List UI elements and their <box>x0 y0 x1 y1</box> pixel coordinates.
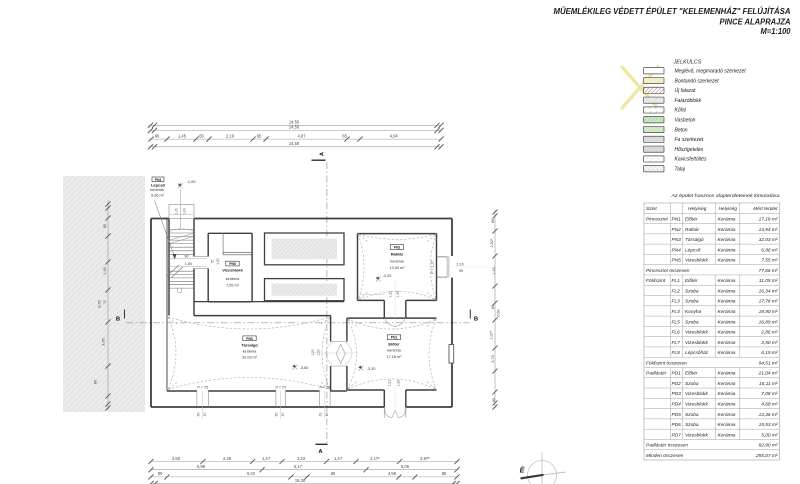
svg-text:Szoba: Szoba <box>685 288 699 294</box>
svg-text:15,30: 15,30 <box>295 478 306 483</box>
svg-text:FL5: FL5 <box>672 319 681 325</box>
svg-text:PN5: PN5 <box>672 258 682 264</box>
svg-text:6,60: 6,60 <box>496 310 500 317</box>
svg-text:4,68 m²: 4,68 m² <box>761 402 778 408</box>
svg-text:PN1: PN1 <box>391 336 398 340</box>
svg-text:1,80: 1,80 <box>185 262 192 266</box>
svg-text:17,18 m²: 17,18 m² <box>759 216 778 222</box>
svg-text:MŰEMLÉKILEG VÉDETT ÉPÜLET "KEL: MŰEMLÉKILEG VÉDETT ÉPÜLET "KELEMENHÁZ" F… <box>554 5 791 16</box>
svg-text:1,10: 1,10 <box>456 262 463 266</box>
svg-text:Falazóblokk: Falazóblokk <box>675 98 702 104</box>
svg-text:Kerámia: Kerámia <box>718 371 736 377</box>
svg-text:PD5: PD5 <box>672 412 682 418</box>
svg-text:Kerámia: Kerámia <box>718 247 736 253</box>
svg-text:2,48: 2,48 <box>223 456 232 461</box>
svg-text:3,85: 3,85 <box>101 338 105 345</box>
svg-text:Beton: Beton <box>675 127 688 133</box>
svg-text:Kerámia: Kerámia <box>718 216 736 222</box>
svg-text:7,55 m²: 7,55 m² <box>761 258 778 264</box>
svg-text:PINCE ALAPRAJZA: PINCE ALAPRAJZA <box>720 16 791 26</box>
svg-text:40: 40 <box>325 413 329 417</box>
svg-text:1,20: 1,20 <box>311 349 315 356</box>
svg-text:1,45: 1,45 <box>175 208 179 215</box>
svg-text:2,86 m²: 2,86 m² <box>760 330 778 336</box>
svg-text:60: 60 <box>275 413 279 417</box>
svg-text:FL8: FL8 <box>672 350 681 356</box>
svg-text:19,90 m²: 19,90 m² <box>759 309 778 315</box>
svg-text:Meglévő, megmaradó szerkezet: Meglévő, megmaradó szerkezet <box>675 68 747 74</box>
svg-text:80: 80 <box>442 471 447 476</box>
svg-text:2,60: 2,60 <box>172 456 181 461</box>
svg-text:6,96 m²: 6,96 m² <box>151 194 165 198</box>
svg-text:2,52⁵: 2,52⁵ <box>490 238 494 247</box>
svg-text:kerámia: kerámia <box>150 188 164 192</box>
svg-text:Új falazat: Új falazat <box>675 87 696 94</box>
svg-text:2,19: 2,19 <box>226 133 235 138</box>
svg-text:1,20: 1,20 <box>388 291 392 298</box>
svg-text:3,50 m²: 3,50 m² <box>761 340 778 346</box>
svg-text:P = 75: P = 75 <box>197 386 209 390</box>
svg-text:Raktár: Raktár <box>685 227 700 233</box>
svg-text:PN3: PN3 <box>246 337 253 341</box>
svg-text:-3,20: -3,20 <box>383 273 393 278</box>
svg-text:4,04: 4,04 <box>390 133 399 138</box>
svg-text:94,51 m²: 94,51 m² <box>759 360 778 366</box>
svg-text:Vizesblokk: Vizesblokk <box>685 330 708 336</box>
svg-text:Vizesblokk: Vizesblokk <box>685 258 708 264</box>
svg-text:Kerámia: Kerámia <box>718 258 736 264</box>
svg-text:Kerámia: Kerámia <box>718 350 736 356</box>
svg-text:FL7: FL7 <box>672 340 681 346</box>
svg-text:17,78 m²: 17,78 m² <box>759 299 778 305</box>
svg-text:17,18 m²: 17,18 m² <box>387 355 403 359</box>
svg-text:7,08 m²: 7,08 m² <box>761 391 778 397</box>
svg-text:PN2: PN2 <box>672 227 682 233</box>
svg-text:Lépcső: Lépcső <box>151 183 166 188</box>
svg-text:Szoba: Szoba <box>685 381 699 387</box>
svg-text:13,94 m²: 13,94 m² <box>759 227 778 233</box>
svg-text:PN4: PN4 <box>672 247 682 253</box>
svg-text:Kerámia: Kerámia <box>718 381 736 387</box>
svg-text:Előtér: Előtér <box>685 278 698 284</box>
svg-text:Kerámia: Kerámia <box>718 402 736 408</box>
svg-text:80: 80 <box>331 471 336 476</box>
svg-text:75: 75 <box>210 260 214 264</box>
svg-text:Talaj: Talaj <box>675 166 686 172</box>
svg-text:80: 80 <box>103 224 107 228</box>
svg-text:Kerámia: Kerámia <box>718 391 736 397</box>
svg-text:5,00 m²: 5,00 m² <box>761 432 778 438</box>
svg-text:FL1: FL1 <box>672 278 681 284</box>
svg-text:1,92: 1,92 <box>396 291 400 298</box>
svg-text:PN4: PN4 <box>155 178 162 182</box>
svg-text:15,53 m²: 15,53 m² <box>759 422 778 428</box>
svg-text:PD6: PD6 <box>672 422 682 428</box>
svg-text:PN5: PN5 <box>229 262 236 266</box>
svg-text:Szoba: Szoba <box>685 319 699 325</box>
svg-text:1,45: 1,45 <box>492 267 496 274</box>
svg-text:Kerámia: Kerámia <box>718 319 736 325</box>
svg-text:Kerámia: Kerámia <box>718 340 736 346</box>
svg-text:Szint: Szint <box>646 206 657 212</box>
svg-text:Vizesblokk: Vizesblokk <box>685 402 708 408</box>
svg-text:PD7: PD7 <box>672 432 682 438</box>
svg-text:1,80: 1,80 <box>183 208 187 215</box>
svg-text:PN3: PN3 <box>672 237 682 243</box>
svg-text:40: 40 <box>281 413 285 417</box>
svg-text:82,90 m²: 82,90 m² <box>759 443 778 449</box>
svg-text:kerámia: kerámia <box>226 277 240 281</box>
svg-text:1,45: 1,45 <box>103 267 107 274</box>
svg-text:Fa szerkezet: Fa szerkezet <box>675 137 704 143</box>
svg-text:60: 60 <box>196 413 200 417</box>
svg-text:Szoba: Szoba <box>685 412 699 418</box>
svg-text:5,98: 5,98 <box>197 464 206 469</box>
svg-text:21,04 m²: 21,04 m² <box>758 371 778 377</box>
svg-text:Pinceszint összesen: Pinceszint összesen <box>646 268 690 274</box>
svg-text:Raktár: Raktár <box>391 252 404 257</box>
svg-text:M=1:100: M=1:100 <box>761 26 791 36</box>
svg-text:Kerámia: Kerámia <box>718 330 736 336</box>
svg-text:5,17: 5,17 <box>294 464 303 469</box>
svg-text:5,05: 5,05 <box>401 464 410 469</box>
svg-text:4,07: 4,07 <box>298 133 307 138</box>
svg-text:1,47: 1,47 <box>262 456 271 461</box>
svg-text:1,07⁵: 1,07⁵ <box>489 330 493 339</box>
svg-text:1,92: 1,92 <box>396 380 400 387</box>
svg-text:PD2: PD2 <box>672 381 682 387</box>
svg-text:PD3: PD3 <box>672 391 682 397</box>
svg-text:kerámia: kerámia <box>390 259 404 263</box>
svg-text:Lépcső: Lépcső <box>685 247 701 253</box>
svg-text:kerámia: kerámia <box>243 349 257 353</box>
svg-text:Padlástér összesen: Padlástér összesen <box>646 443 688 449</box>
svg-text:Szoba: Szoba <box>685 422 699 428</box>
svg-text:Kerámia: Kerámia <box>718 309 736 315</box>
svg-text:13,46 m²: 13,46 m² <box>759 412 778 418</box>
svg-text:Vizesblokk: Vizesblokk <box>685 432 708 438</box>
svg-text:-3,60: -3,60 <box>300 365 310 370</box>
svg-text:Kerámia: Kerámia <box>718 422 736 428</box>
svg-text:P = 75: P = 75 <box>275 386 287 390</box>
svg-text:Lépcsőház: Lépcsőház <box>685 350 709 356</box>
svg-text:2,17⁵: 2,17⁵ <box>370 456 380 461</box>
svg-text:70: 70 <box>103 300 107 304</box>
svg-text:1,21: 1,21 <box>388 380 392 387</box>
svg-text:Vasbeton: Vasbeton <box>675 117 696 123</box>
svg-text:Szoba: Szoba <box>685 299 699 305</box>
svg-text:Hőszigetelés: Hőszigetelés <box>675 147 704 153</box>
svg-text:É: É <box>520 466 525 475</box>
svg-text:1,90: 1,90 <box>216 258 220 265</box>
svg-text:255,07 m²: 255,07 m² <box>755 453 778 459</box>
svg-text:11,05 m²: 11,05 m² <box>759 278 778 284</box>
svg-text:6,60: 6,60 <box>98 300 102 307</box>
svg-text:FL3: FL3 <box>672 299 681 305</box>
svg-text:Konyha: Konyha <box>685 309 702 315</box>
svg-text:Bontandó szerkezet: Bontandó szerkezet <box>675 78 720 84</box>
svg-text:65: 65 <box>199 133 204 138</box>
svg-text:16,11 m²: 16,11 m² <box>759 381 778 387</box>
svg-text:B: B <box>116 317 120 323</box>
svg-text:Kerámia: Kerámia <box>718 432 736 438</box>
svg-text:FL6: FL6 <box>672 330 681 336</box>
svg-text:2,97⁵: 2,97⁵ <box>420 456 430 461</box>
svg-text:-1,00: -1,00 <box>187 179 197 184</box>
svg-text:Kavicsfeltöltés: Kavicsfeltöltés <box>675 157 707 163</box>
svg-text:P = 75: P = 75 <box>319 386 331 390</box>
svg-text:JELKULCS: JELKULCS <box>672 60 702 66</box>
svg-text:Földszint összesen: Földszint összesen <box>646 360 687 366</box>
svg-text:Előtér: Előtér <box>685 371 698 377</box>
svg-text:FL2: FL2 <box>672 288 681 294</box>
svg-text:32,03 m²: 32,03 m² <box>242 356 258 360</box>
svg-text:65: 65 <box>342 133 347 138</box>
svg-text:Vizesblokk: Vizesblokk <box>685 391 708 397</box>
svg-text:4,58: 4,58 <box>388 471 397 476</box>
svg-text:16,34 m²: 16,34 m² <box>759 288 778 294</box>
svg-text:Helyiség: Helyiség <box>719 206 738 212</box>
svg-text:Előtér: Előtér <box>388 341 400 346</box>
svg-text:90: 90 <box>184 255 188 259</box>
svg-text:14,50: 14,50 <box>289 125 300 130</box>
svg-text:Kerámia: Kerámia <box>718 237 736 243</box>
svg-text:kerámia: kerámia <box>387 348 401 352</box>
svg-text:-3,20: -3,20 <box>367 366 377 371</box>
svg-text:FL4: FL4 <box>672 309 681 315</box>
svg-text:Mért terület: Mért terület <box>753 206 778 212</box>
svg-text:16,89 m²: 16,89 m² <box>759 319 778 325</box>
svg-text:Kerámia: Kerámia <box>718 278 736 284</box>
svg-text:Kerámia: Kerámia <box>718 288 736 294</box>
svg-text:Kőfal: Kőfal <box>675 108 687 114</box>
svg-text:65: 65 <box>257 133 262 138</box>
svg-text:PN2: PN2 <box>394 246 401 250</box>
svg-text:80: 80 <box>492 398 496 402</box>
svg-text:6,19 m²: 6,19 m² <box>761 350 778 356</box>
svg-text:90: 90 <box>459 269 463 273</box>
svg-text:PN1: PN1 <box>672 216 682 222</box>
svg-text:Kerámia: Kerámia <box>718 227 736 233</box>
svg-text:Padlástér: Padlástér <box>646 371 667 377</box>
svg-text:B: B <box>474 317 478 323</box>
svg-text:6,96 m²: 6,96 m² <box>761 247 778 253</box>
svg-text:3,75: 3,75 <box>491 355 495 362</box>
svg-text:Az épület hasznos alapterülete: Az épület hasznos alapterületeinek kimut… <box>670 193 780 198</box>
svg-text:80: 80 <box>491 219 495 223</box>
svg-text:1,90: 1,90 <box>317 349 321 356</box>
svg-text:PD4: PD4 <box>672 402 682 408</box>
svg-text:80: 80 <box>155 133 160 138</box>
svg-text:Kerámia: Kerámia <box>718 412 736 418</box>
svg-text:32,03 m²: 32,03 m² <box>759 237 778 243</box>
svg-text:77,66 m²: 77,66 m² <box>759 268 778 274</box>
svg-text:Előtér: Előtér <box>685 216 698 222</box>
svg-text:1,45: 1,45 <box>178 133 187 138</box>
svg-text:7,55 m²: 7,55 m² <box>226 284 240 288</box>
svg-text:Vizesblokk: Vizesblokk <box>685 340 708 346</box>
svg-text:13,94 m²: 13,94 m² <box>390 266 406 270</box>
svg-text:2,23: 2,23 <box>297 456 306 461</box>
svg-text:Földszint: Földszint <box>646 278 666 284</box>
svg-text:40: 40 <box>203 413 207 417</box>
svg-text:60: 60 <box>319 413 323 417</box>
svg-text:6,22: 6,22 <box>247 471 256 476</box>
svg-text:Kerámia: Kerámia <box>718 299 736 305</box>
svg-text:Minden összesen: Minden összesen <box>646 453 684 459</box>
svg-text:80: 80 <box>94 380 98 384</box>
svg-text:80: 80 <box>491 305 495 309</box>
svg-text:PD1: PD1 <box>672 371 682 377</box>
svg-text:Vizesblokk: Vizesblokk <box>222 267 243 272</box>
svg-text:1,47: 1,47 <box>334 456 343 461</box>
svg-text:Helyiség: Helyiség <box>688 206 707 212</box>
svg-text:P = 1,27: P = 1,27 <box>431 260 435 273</box>
svg-text:14,50: 14,50 <box>289 141 300 146</box>
svg-text:Társalgó: Társalgó <box>685 237 704 243</box>
svg-text:Társalgó: Társalgó <box>241 343 258 348</box>
svg-text:Pinceszint: Pinceszint <box>646 216 669 222</box>
svg-text:80: 80 <box>158 471 163 476</box>
